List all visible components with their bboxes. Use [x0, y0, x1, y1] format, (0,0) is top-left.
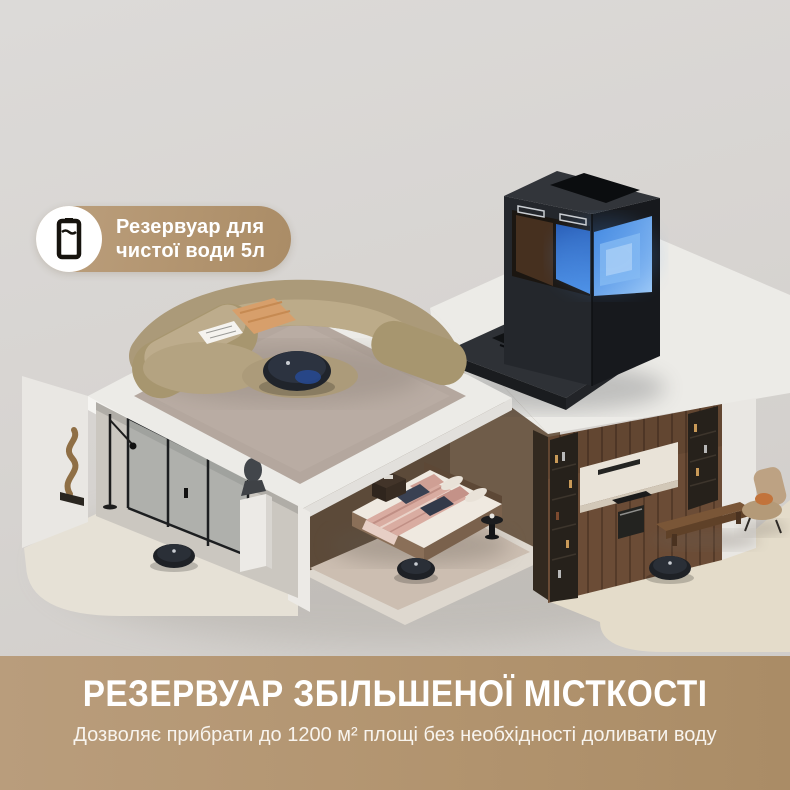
feature-callout-badge: Резервуар для чистої води 5л [36, 206, 291, 272]
robot-display [295, 370, 321, 384]
wine-cabinet-right [688, 406, 718, 510]
wine-cabinet-left [550, 432, 578, 602]
water-tank-icon [55, 218, 83, 260]
left-outer-wall [22, 376, 88, 548]
orange-cushion [755, 493, 773, 505]
badge-text-line1: Резервуар для [116, 215, 265, 239]
banner-subtitle: Дозволяє прибрати до 1200 м² площі без н… [73, 724, 716, 747]
marketing-image: Резервуар для чистої води 5л РЕЗЕРВУАР З… [0, 0, 790, 790]
badge-text-line2: чистої води 5л [116, 239, 265, 263]
banner-title: РЕЗЕРВУАР ЗБІЛЬШЕНОЇ МІСТКОСТІ [83, 673, 708, 715]
bottom-banner: РЕЗЕРВУАР ЗБІЛЬШЕНОЇ МІСТКОСТІ Дозволяє … [0, 656, 790, 790]
badge-text: Резервуар для чистої води 5л [116, 215, 265, 263]
badge-icon-circle [36, 206, 102, 272]
